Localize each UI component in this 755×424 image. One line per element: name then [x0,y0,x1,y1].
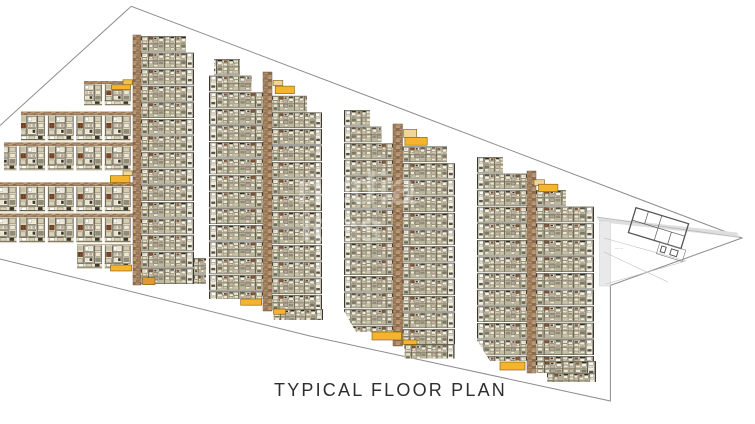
svg-text:___ __: ___ __ [614,246,623,249]
svg-text:TYPICAL FLOOR PLAN: TYPICAL FLOOR PLAN [274,380,507,400]
svg-text:ices: ices [300,203,382,250]
